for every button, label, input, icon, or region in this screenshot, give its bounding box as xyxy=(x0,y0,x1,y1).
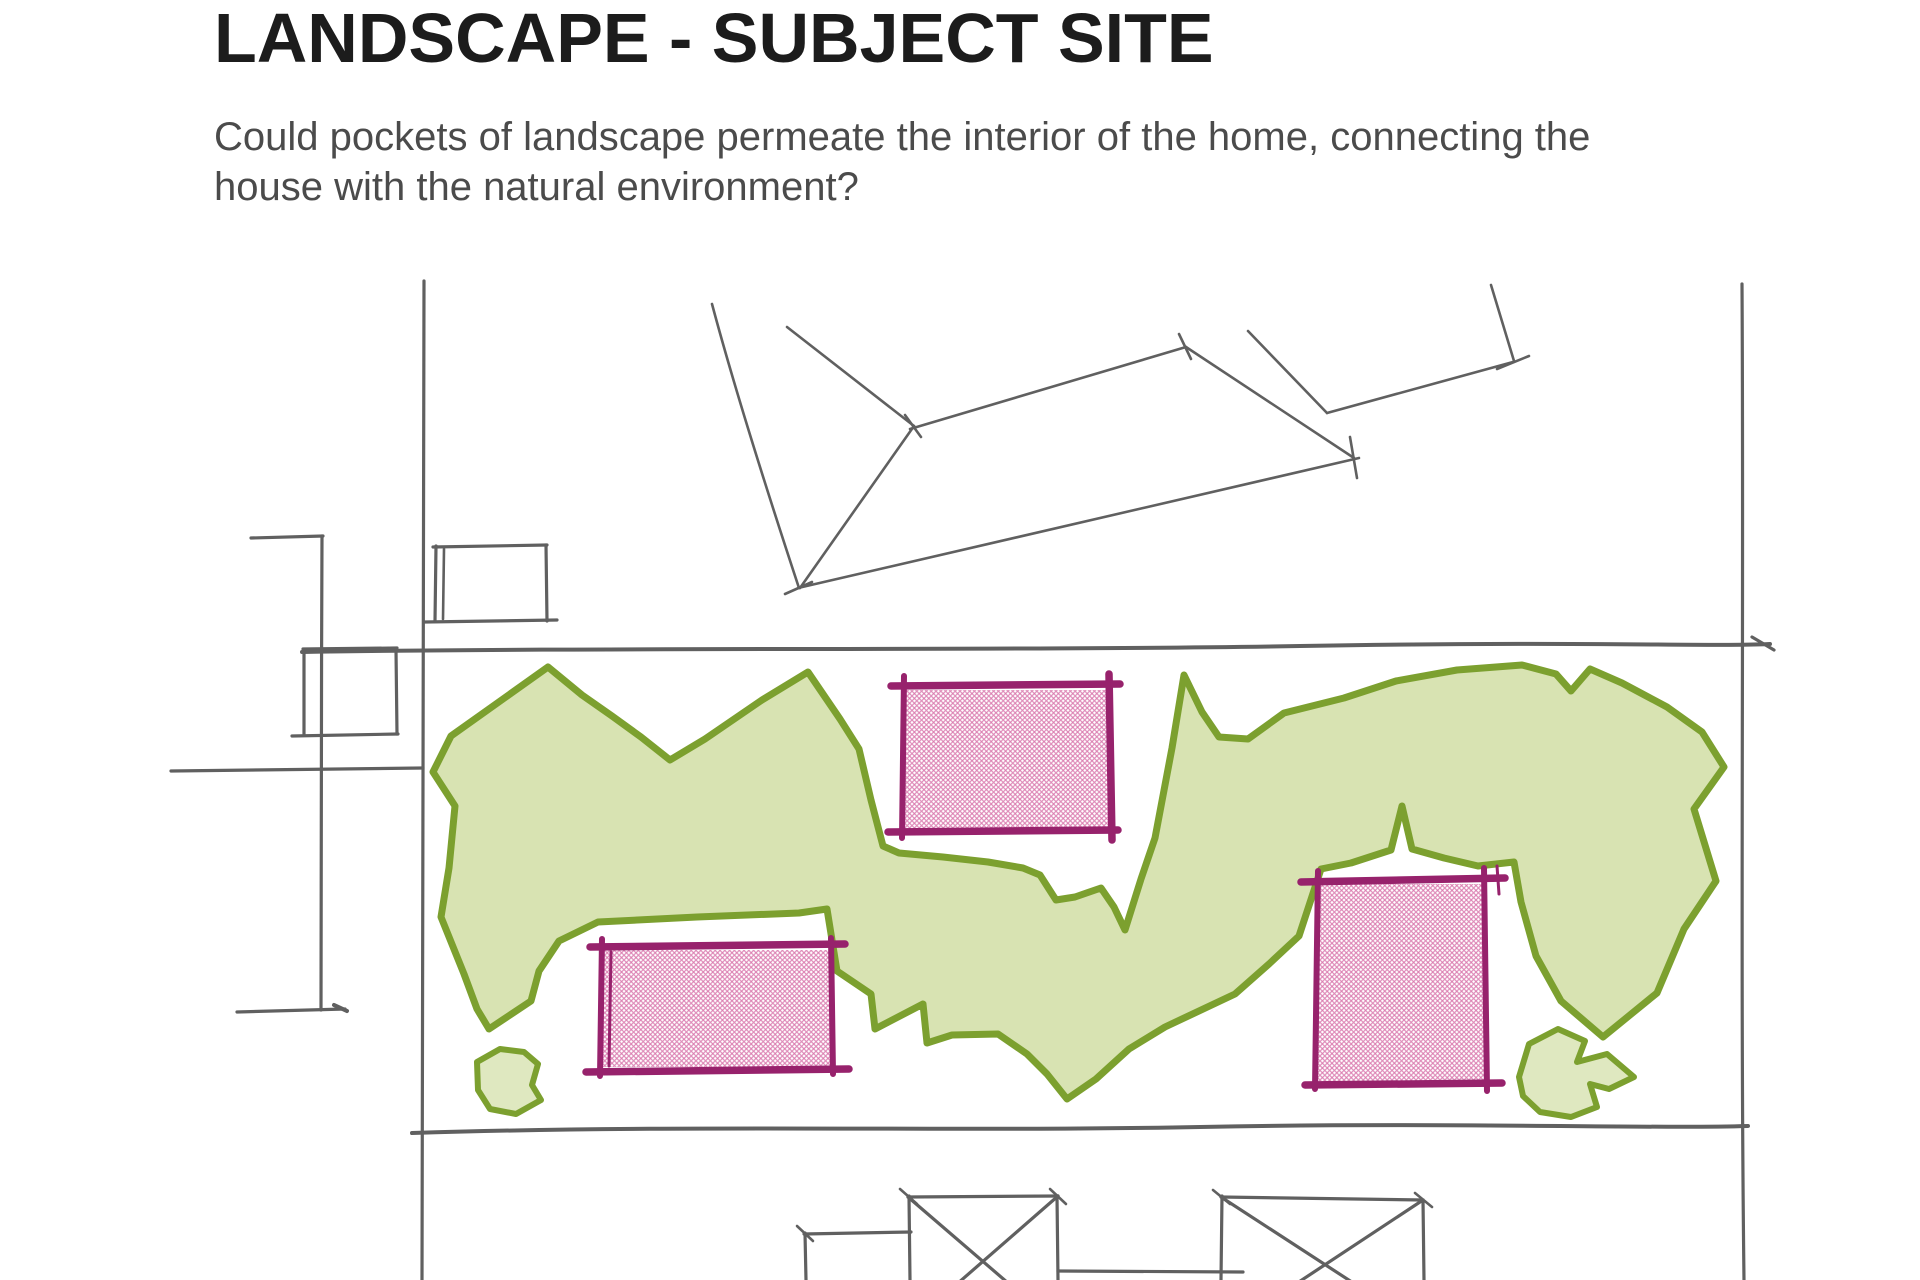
courtyard-r-hatch xyxy=(1317,884,1486,1081)
subtitle-line-1: Could pockets of landscape permeate the … xyxy=(214,115,1590,159)
page-header: LANDSCAPE - SUBJECT SITE Could pockets o… xyxy=(214,0,1590,212)
courtyard-top-hatch xyxy=(903,690,1108,830)
dimension-vertical-line xyxy=(321,536,322,1010)
outbuilding-bottom xyxy=(425,620,557,622)
courtyard-bl-edge-left-double xyxy=(609,952,611,1066)
dimension-step-horizontal xyxy=(251,536,323,538)
sketch-page: LANDSCAPE - SUBJECT SITE Could pockets o… xyxy=(0,0,1920,1280)
site-boundary-left-line xyxy=(422,281,424,1280)
courtyard-r-bar-bottom xyxy=(1305,1083,1502,1085)
roof-line xyxy=(712,304,799,588)
xbox1-right xyxy=(1057,1196,1058,1280)
bottom-connector-line xyxy=(1058,1271,1243,1272)
band-bottom-line xyxy=(412,1125,1748,1133)
landscape-small-blob-left xyxy=(477,1049,541,1114)
courtyard-pocket-bottom-left xyxy=(586,938,849,1076)
xbox1-top xyxy=(908,1196,1058,1197)
roof-line xyxy=(1186,347,1354,458)
landscape-small-blob-right xyxy=(1519,1029,1634,1117)
neighbour-roof-sketch-bottom xyxy=(797,1189,1438,1280)
subtitle-line-2: house with the natural environment? xyxy=(214,165,859,209)
outbuilding-left-double xyxy=(443,549,444,619)
courtyard-r-bar-top xyxy=(1301,878,1505,882)
roof-node-tick xyxy=(1179,334,1191,359)
courtyard-r-edge-right xyxy=(1484,868,1487,1091)
bottom-rect-top xyxy=(804,1232,911,1234)
site-boundary-right-line xyxy=(1742,284,1744,1280)
dimension-square-right xyxy=(396,650,397,734)
courtyard-bl-bar-top xyxy=(590,944,845,947)
neighbour-roof-sketch-top xyxy=(712,285,1529,594)
xbox2-left xyxy=(1221,1196,1222,1280)
roof-line xyxy=(800,426,914,588)
roof-line xyxy=(1491,285,1514,361)
dimension-square-bottom xyxy=(292,734,398,736)
xbox2-right xyxy=(1423,1200,1424,1280)
page-subtitle: Could pockets of landscape permeate the … xyxy=(214,112,1590,212)
roof-ridge-line xyxy=(910,347,1186,429)
courtyard-r-edge-left xyxy=(1315,871,1318,1089)
bottom-rect-left xyxy=(805,1233,806,1280)
small-outbuilding-rect xyxy=(425,545,557,622)
xbox1-diagonal xyxy=(908,1197,1072,1280)
dimension-marks-left xyxy=(171,536,423,1012)
xbox2-diagonal xyxy=(1221,1197,1438,1280)
courtyard-top-edge-right xyxy=(1109,674,1112,840)
dimension-square-top xyxy=(303,648,397,649)
dimension-long-horizontal xyxy=(171,768,423,771)
courtyard-top-edge-left xyxy=(902,676,904,838)
courtyard-bl-edge-left xyxy=(600,939,602,1076)
roof-line xyxy=(1248,331,1327,413)
courtyard-r-bar-top-tick xyxy=(1497,866,1499,894)
page-title: LANDSCAPE - SUBJECT SITE xyxy=(214,0,1590,70)
roof-line xyxy=(787,327,914,426)
courtyard-pocket-top xyxy=(888,674,1120,840)
xbox1-left xyxy=(909,1196,910,1280)
courtyard-top-bar-bottom xyxy=(888,830,1118,832)
band-top-line xyxy=(302,644,1770,652)
courtyard-pocket-right xyxy=(1301,866,1505,1091)
courtyard-bl-bar-bottom xyxy=(586,1069,849,1072)
roof-line xyxy=(1327,362,1513,413)
courtyard-bl-hatch xyxy=(603,950,831,1067)
outbuilding-top xyxy=(433,545,547,547)
outbuilding-right xyxy=(546,545,547,621)
outbuilding-left xyxy=(435,546,436,621)
xbox2-top xyxy=(1221,1197,1423,1200)
courtyard-bl-edge-right xyxy=(831,938,833,1074)
dimension-bottom-tick xyxy=(237,1009,345,1012)
roof-eave-line xyxy=(798,458,1359,588)
courtyard-top-bar-top xyxy=(891,684,1120,686)
